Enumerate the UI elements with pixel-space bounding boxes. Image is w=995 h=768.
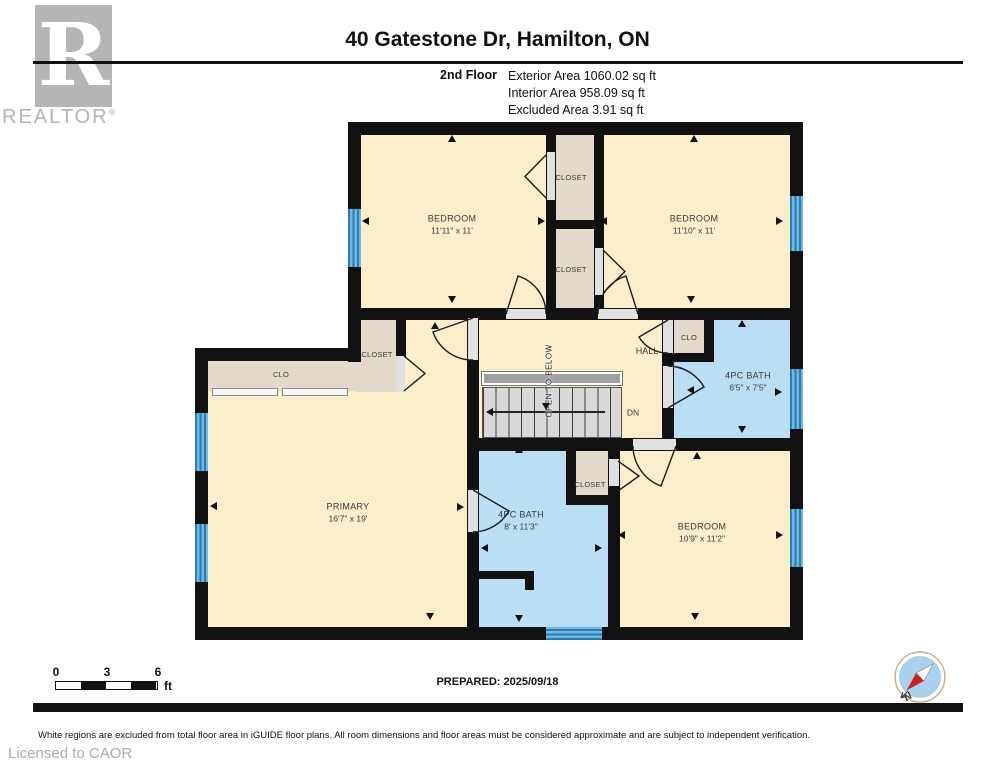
measure-arrow bbox=[362, 217, 369, 225]
room-dims: 10'9" x 11'2" bbox=[678, 533, 727, 544]
wall bbox=[348, 308, 803, 320]
stair-direction-arrow bbox=[486, 408, 493, 416]
sliding-door bbox=[282, 388, 348, 396]
measure-arrow bbox=[738, 320, 746, 327]
window bbox=[195, 523, 208, 583]
room-label-bath-primary: 4PC BATH 8' x 11'3" bbox=[498, 510, 544, 533]
closet-label: CLOSET bbox=[361, 350, 392, 360]
room-dims: 11'10" x 11' bbox=[670, 225, 719, 236]
measure-arrow bbox=[515, 446, 523, 453]
door-opening bbox=[609, 459, 619, 486]
closet-label: CLOSET bbox=[574, 480, 605, 490]
room-dims: 11'11" x 11' bbox=[428, 225, 477, 236]
licensed-text: Licensed to CAOR bbox=[8, 745, 132, 762]
door-opening bbox=[595, 248, 603, 295]
footer-bar bbox=[33, 703, 963, 712]
room-label-bath-hall: 4PC BATH 6'5" x 7'5" bbox=[725, 371, 771, 394]
room-dims: 8' x 11'3" bbox=[498, 521, 544, 532]
measure-arrow bbox=[738, 426, 746, 433]
measure-arrow bbox=[690, 135, 698, 142]
closet-label: CLOSET bbox=[555, 265, 586, 275]
primary-floor bbox=[202, 355, 473, 632]
room-name: BEDROOM bbox=[670, 214, 719, 226]
prepared-date: PREPARED: 2025/09/18 bbox=[0, 676, 995, 688]
floorplan-page: R REALTOR® 40 Gatestone Dr, Hamilton, ON… bbox=[0, 0, 995, 768]
sliding-door bbox=[212, 388, 278, 396]
room-label-bedroom1: BEDROOM 11'11" x 11' bbox=[428, 214, 477, 237]
window bbox=[545, 627, 603, 640]
stairs-dn-label: DN bbox=[627, 407, 639, 418]
window bbox=[348, 208, 361, 268]
room-label-bedroom2: BEDROOM 11'10" x 11' bbox=[670, 214, 719, 237]
closet-label: CLO bbox=[273, 370, 289, 380]
window bbox=[790, 195, 803, 252]
measure-arrow bbox=[538, 217, 545, 225]
measure-arrow bbox=[210, 502, 217, 510]
measure-arrow bbox=[691, 613, 699, 620]
measure-arrow bbox=[693, 452, 701, 459]
room-name: PRIMARY bbox=[327, 502, 370, 514]
measure-arrow bbox=[618, 531, 625, 539]
closet-label: CLO bbox=[681, 333, 697, 343]
room-name: BEDROOM bbox=[678, 522, 727, 534]
floor-plan: BEDROOM 11'11" x 11' BEDROOM 11'10" x 11… bbox=[0, 0, 995, 768]
wall bbox=[195, 627, 803, 640]
measure-arrow bbox=[595, 544, 602, 552]
wall bbox=[195, 348, 208, 640]
wall bbox=[348, 122, 803, 135]
half-wall bbox=[525, 571, 534, 590]
measure-arrow bbox=[542, 403, 550, 410]
measure-arrow bbox=[776, 217, 783, 225]
door-opening bbox=[547, 152, 555, 200]
measure-arrow bbox=[448, 135, 456, 142]
room-name: 4PC BATH bbox=[725, 371, 771, 383]
door-opening bbox=[506, 309, 546, 319]
room-label-bedroom3: BEDROOM 10'9" x 11'2" bbox=[678, 522, 727, 545]
room-label-hall: HALL bbox=[636, 346, 659, 358]
measure-arrow bbox=[431, 322, 439, 329]
door-opening bbox=[598, 309, 638, 319]
measure-arrow bbox=[448, 296, 456, 303]
wall bbox=[195, 348, 361, 361]
door-opening bbox=[633, 439, 676, 450]
room-dims: 6'5" x 7'5" bbox=[725, 382, 771, 393]
room-name: 4PC BATH bbox=[498, 510, 544, 522]
wall bbox=[546, 220, 604, 229]
measure-arrow bbox=[776, 531, 783, 539]
door-opening bbox=[396, 356, 405, 392]
wall bbox=[467, 438, 620, 451]
window bbox=[790, 368, 803, 430]
room-name: BEDROOM bbox=[428, 214, 477, 226]
closet-label: CLOSET bbox=[555, 173, 586, 183]
window bbox=[790, 508, 803, 568]
measure-arrow bbox=[426, 613, 434, 620]
wall bbox=[566, 440, 576, 505]
door-opening bbox=[468, 490, 478, 532]
measure-arrow bbox=[687, 386, 694, 394]
measure-arrow bbox=[687, 296, 695, 303]
door-opening bbox=[663, 366, 673, 408]
measure-arrow bbox=[481, 544, 488, 552]
window bbox=[195, 412, 208, 472]
wall bbox=[662, 353, 714, 362]
door-opening bbox=[468, 318, 478, 360]
room-label-primary: PRIMARY 16'7" x 19' bbox=[327, 502, 370, 525]
measure-arrow bbox=[515, 615, 523, 622]
measure-arrow bbox=[775, 388, 782, 396]
room-dims: 16'7" x 19' bbox=[327, 513, 370, 524]
door-opening bbox=[663, 320, 673, 353]
measure-arrow bbox=[600, 217, 607, 225]
disclaimer-text: White regions are excluded from total fl… bbox=[38, 730, 810, 741]
measure-arrow bbox=[457, 503, 464, 511]
wall bbox=[396, 312, 406, 358]
